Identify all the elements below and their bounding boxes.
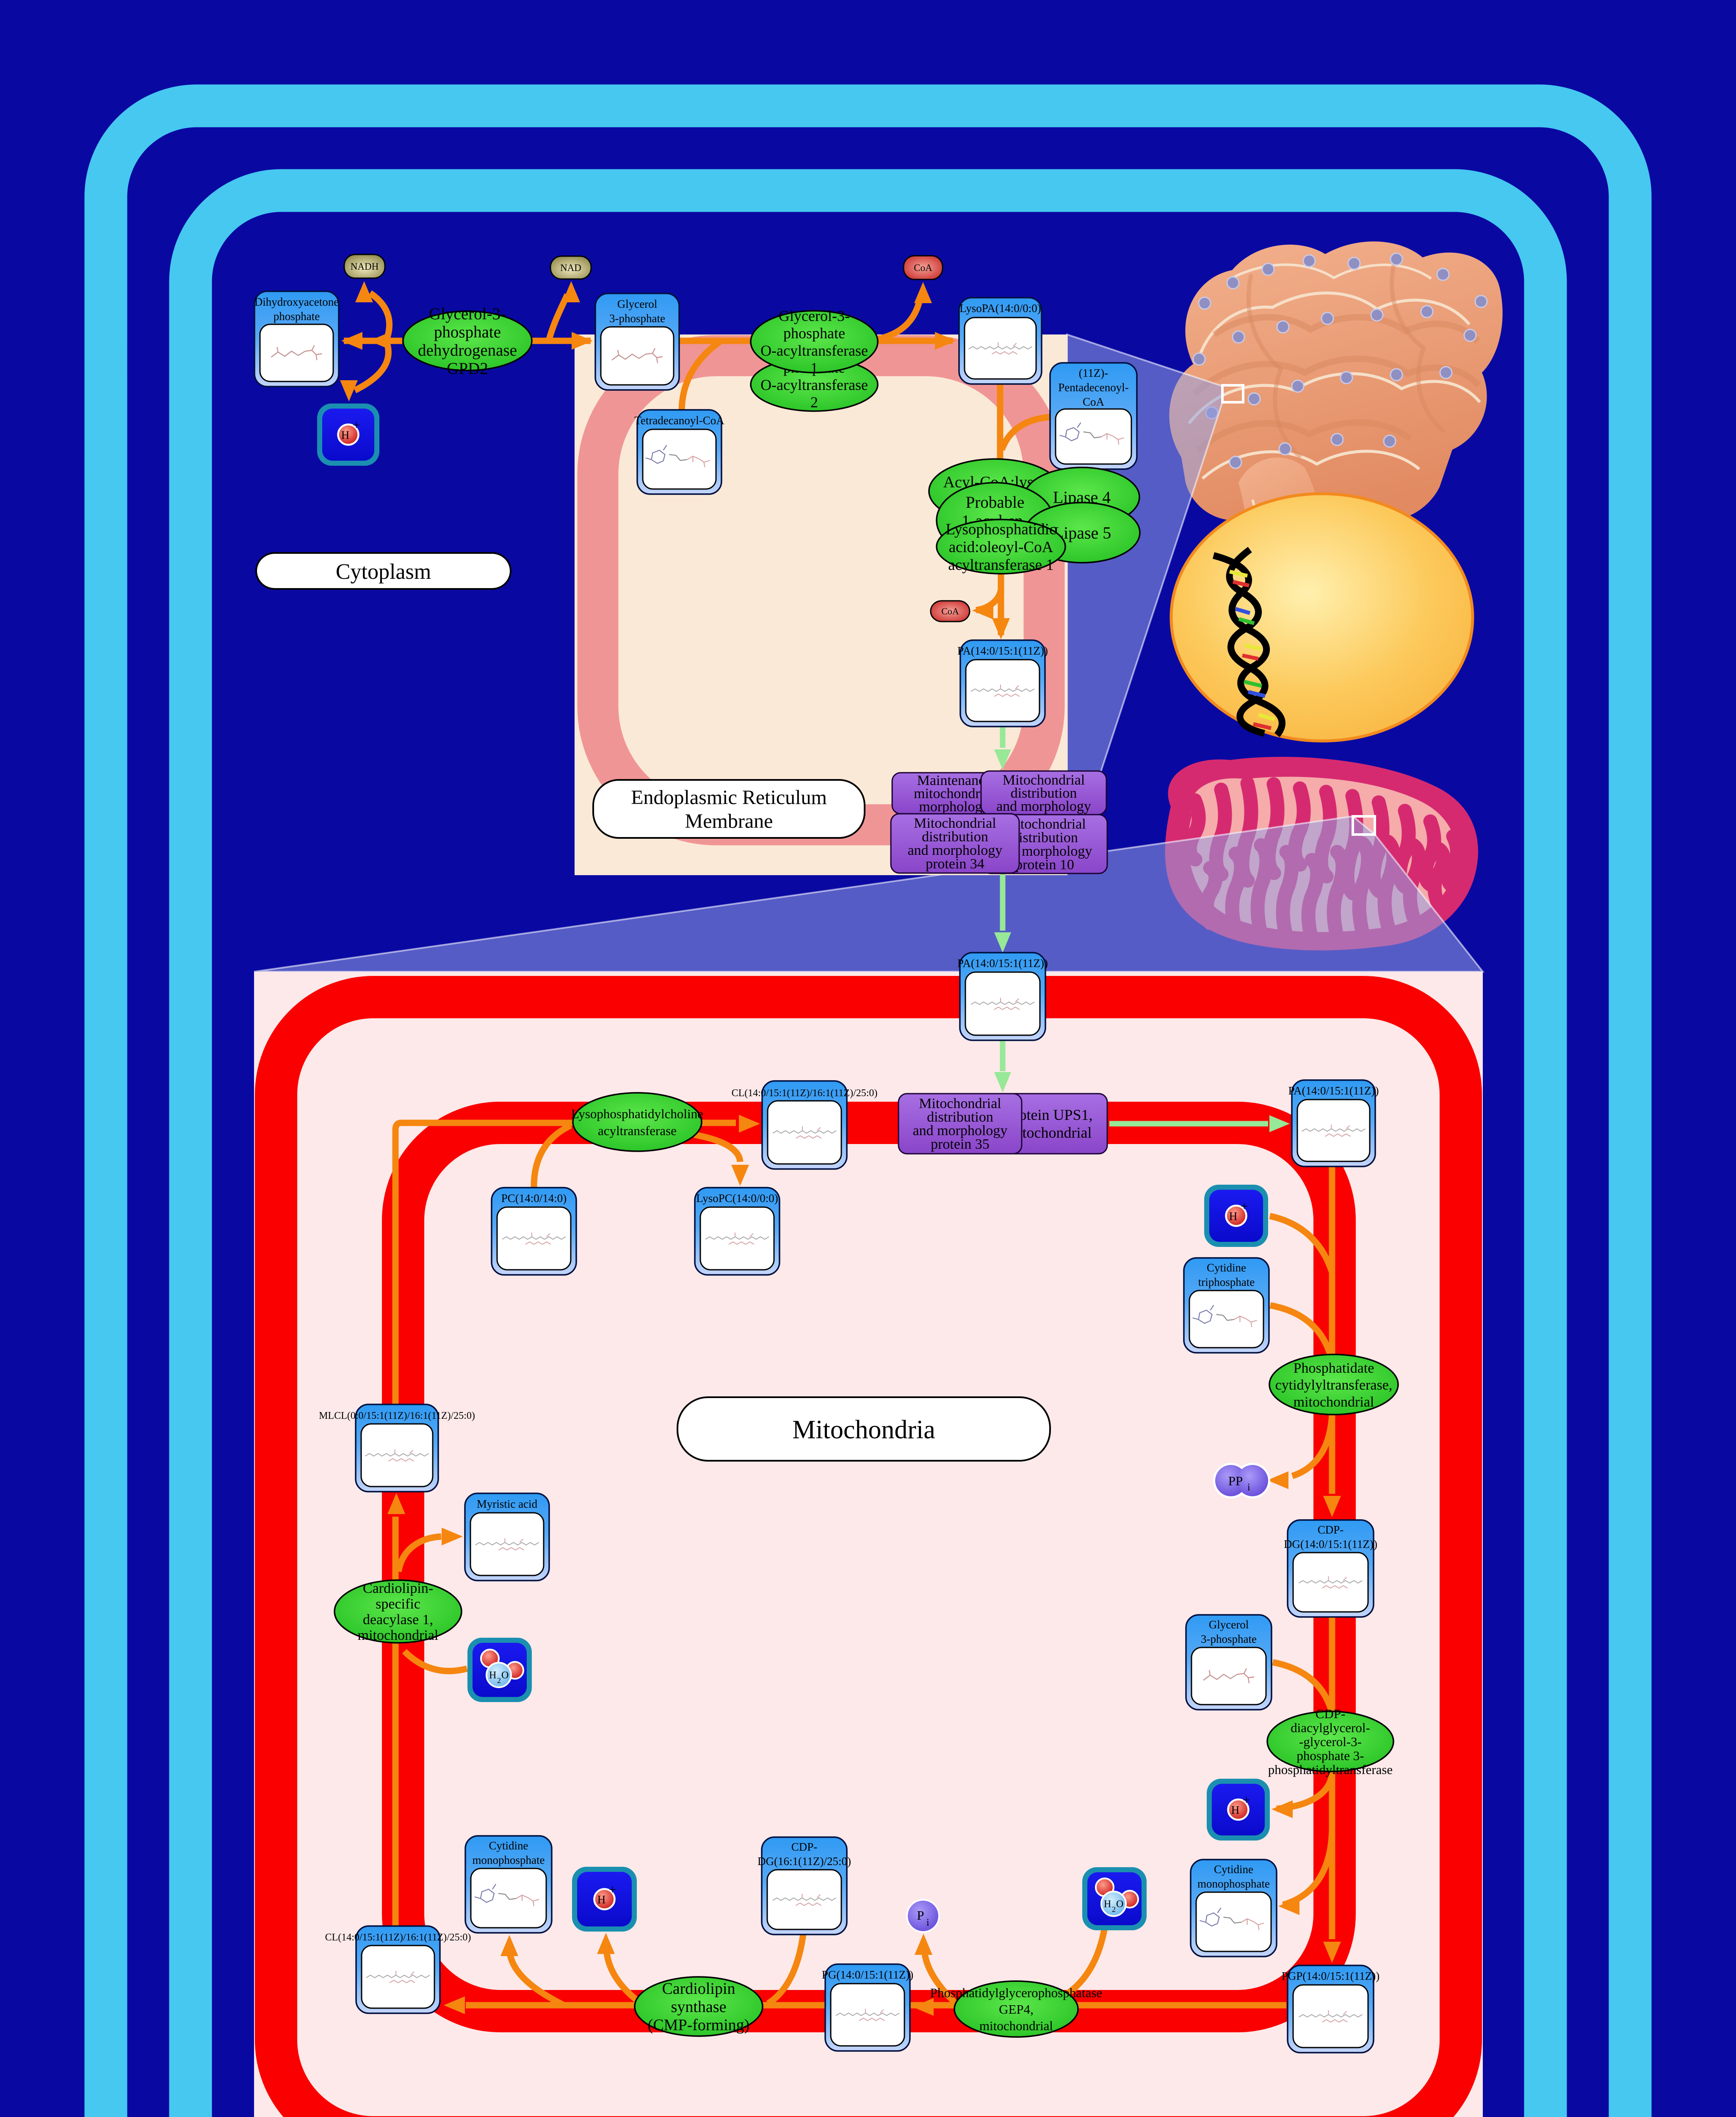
svg-text:Cytidine: Cytidine — [1214, 1863, 1253, 1876]
svg-text:O-acyltransferase: O-acyltransferase — [760, 376, 868, 393]
svg-text:H: H — [341, 429, 350, 442]
svg-text:CoA: CoA — [941, 606, 959, 616]
svg-text:i: i — [1247, 1482, 1250, 1493]
svg-text:and morphology: and morphology — [996, 799, 1091, 814]
svg-text:Probable: Probable — [966, 493, 1025, 511]
svg-text:+: + — [1241, 1199, 1248, 1213]
svg-text:Cytidine: Cytidine — [489, 1839, 528, 1852]
svg-text:acyltransferase: acyltransferase — [598, 1123, 677, 1138]
svg-text:phosphate: phosphate — [434, 323, 501, 341]
svg-text:H: H — [1229, 1210, 1238, 1223]
svg-text:LysoPC(14:0/0:0): LysoPC(14:0/0:0) — [696, 1192, 778, 1205]
svg-text:PA(14:0/15:1(11Z)): PA(14:0/15:1(11Z)) — [957, 957, 1048, 970]
svg-text:diacylglycerol-: diacylglycerol- — [1291, 1720, 1370, 1735]
svg-text:phosphatidyltransferase: phosphatidyltransferase — [1268, 1762, 1393, 1777]
svg-text:Tetradecanoyl-CoA: Tetradecanoyl-CoA — [634, 414, 724, 427]
svg-text:synthase: synthase — [671, 1998, 727, 2016]
svg-text:Glycerol-3-: Glycerol-3- — [779, 307, 850, 324]
svg-text:2: 2 — [810, 394, 818, 411]
svg-text:LysoPA(14:0/0:0): LysoPA(14:0/0:0) — [959, 302, 1041, 315]
svg-text:i: i — [926, 1917, 929, 1928]
svg-text:2: 2 — [497, 1676, 501, 1685]
svg-text:Glycerol: Glycerol — [1209, 1618, 1249, 1631]
svg-text:PP: PP — [1228, 1473, 1243, 1488]
svg-text:CDP-: CDP- — [791, 1841, 818, 1853]
svg-text:H: H — [1104, 1899, 1111, 1910]
svg-text:Lysophosphatidylcholine: Lysophosphatidylcholine — [571, 1106, 703, 1121]
svg-text:phosphate: phosphate — [274, 310, 320, 323]
svg-text:specific: specific — [376, 1596, 420, 1612]
svg-text:Cardiolipin: Cardiolipin — [662, 1980, 735, 1998]
svg-text:MLCL(0:0/15:1(11Z)/16:1(11Z)/2: MLCL(0:0/15:1(11Z)/16:1(11Z)/25:0) — [319, 1410, 475, 1421]
svg-text:CDP-: CDP- — [1316, 1706, 1346, 1721]
svg-text:PA(14:0/15:1(11Z)): PA(14:0/15:1(11Z)) — [957, 644, 1048, 657]
svg-text:Cardiolipin-: Cardiolipin- — [363, 1581, 433, 1596]
svg-text:P: P — [917, 1908, 924, 1923]
svg-text:1: 1 — [810, 359, 818, 376]
svg-text:H: H — [1231, 1804, 1240, 1816]
svg-text:NAD: NAD — [560, 263, 581, 273]
svg-text:3-phosphate: 3-phosphate — [609, 312, 665, 325]
svg-text:monophosphate: monophosphate — [1197, 1877, 1270, 1890]
svg-text:protein 34: protein 34 — [926, 856, 984, 872]
svg-text:Glycerol: Glycerol — [617, 298, 657, 310]
svg-text:Lysophosphatidic: Lysophosphatidic — [945, 521, 1056, 538]
svg-text:+: + — [353, 418, 360, 432]
svg-text:CL(14:0/15:1(11Z)/16:1(11Z)/25: CL(14:0/15:1(11Z)/16:1(11Z)/25:0) — [325, 1932, 471, 1943]
svg-text:Glycerol-3-: Glycerol-3- — [429, 305, 506, 323]
svg-text:monophosphate: monophosphate — [473, 1854, 545, 1866]
svg-text:Myristic acid: Myristic acid — [477, 1498, 538, 1510]
svg-text:2: 2 — [1112, 1905, 1116, 1914]
svg-text:Phosphatidate: Phosphatidate — [1294, 1360, 1374, 1376]
svg-text:PC(14:0/14:0): PC(14:0/14:0) — [501, 1192, 567, 1205]
svg-text:mitochondrial: mitochondrial — [979, 2018, 1053, 2033]
svg-text:PGP(14:0/15:1(11Z)): PGP(14:0/15:1(11Z)) — [1282, 1970, 1380, 1982]
svg-text:CL(14:0/15:1(11Z)/16:1(11Z)/25: CL(14:0/15:1(11Z)/16:1(11Z)/25:0) — [732, 1088, 878, 1099]
svg-text:morphology: morphology — [919, 799, 989, 815]
svg-text:+: + — [609, 1883, 616, 1897]
svg-text:GPD2: GPD2 — [447, 359, 488, 378]
svg-text:triphosphate: triphosphate — [1198, 1276, 1255, 1288]
svg-text:acyltransferase 1: acyltransferase 1 — [948, 556, 1054, 574]
svg-text:CoA: CoA — [914, 263, 932, 273]
svg-text:Membrane: Membrane — [685, 810, 773, 832]
svg-text:protein 35: protein 35 — [931, 1136, 990, 1152]
svg-text:protein 10: protein 10 — [1015, 857, 1074, 873]
svg-text:H: H — [597, 1893, 606, 1906]
svg-text:CDP-: CDP- — [1318, 1523, 1344, 1536]
svg-text:acid:oleoyl-CoA: acid:oleoyl-CoA — [949, 539, 1053, 556]
svg-text:cytidylyltransferase,: cytidylyltransferase, — [1275, 1377, 1393, 1393]
svg-text:GEP4,: GEP4, — [999, 2002, 1034, 2017]
svg-text:(CMP-forming): (CMP-forming) — [648, 2016, 750, 2034]
svg-text:phosphate: phosphate — [783, 325, 845, 342]
svg-text:(11Z)-: (11Z)- — [1079, 367, 1108, 379]
svg-text:Dihydroxyacetone: Dihydroxyacetone — [254, 296, 339, 308]
svg-text:Phosphatidylglycerophosphatase: Phosphatidylglycerophosphatase — [930, 1985, 1102, 2000]
svg-text:+: + — [1243, 1793, 1250, 1807]
svg-text:-glycerol-3-: -glycerol-3- — [1299, 1734, 1362, 1749]
svg-text:mitochondrial: mitochondrial — [1294, 1394, 1374, 1410]
svg-text:O-acyltransferase: O-acyltransferase — [760, 342, 868, 359]
svg-text:phosphate 3-: phosphate 3- — [1296, 1748, 1364, 1763]
svg-text:H: H — [489, 1670, 496, 1681]
svg-text:NADH: NADH — [351, 261, 379, 272]
svg-text:dehydrogenase: dehydrogenase — [418, 341, 517, 359]
svg-text:O: O — [501, 1670, 509, 1681]
svg-text:Cytoplasm: Cytoplasm — [336, 560, 431, 584]
svg-text:PG(14:0/15:1(11Z)): PG(14:0/15:1(11Z)) — [822, 1968, 913, 1981]
svg-text:3-phosphate: 3-phosphate — [1201, 1633, 1257, 1645]
svg-text:DG(16:1(11Z)/25:0): DG(16:1(11Z)/25:0) — [757, 1855, 851, 1868]
svg-text:Mitochondria: Mitochondria — [792, 1415, 935, 1444]
svg-text:DG(14:0/15:1(11Z)): DG(14:0/15:1(11Z)) — [1284, 1538, 1377, 1550]
svg-text:Pentadecenoyl-: Pentadecenoyl- — [1058, 381, 1128, 394]
svg-text:Endoplasmic Reticulum: Endoplasmic Reticulum — [631, 786, 827, 809]
svg-text:PA(14:0/15:1(11Z)): PA(14:0/15:1(11Z)) — [1288, 1084, 1379, 1097]
svg-text:Cytidine: Cytidine — [1207, 1261, 1246, 1274]
svg-text:O: O — [1116, 1899, 1123, 1910]
svg-text:mitochondrial: mitochondrial — [358, 1628, 439, 1643]
svg-text:deacylase 1,: deacylase 1, — [363, 1612, 433, 1628]
svg-text:CoA: CoA — [1083, 395, 1105, 408]
